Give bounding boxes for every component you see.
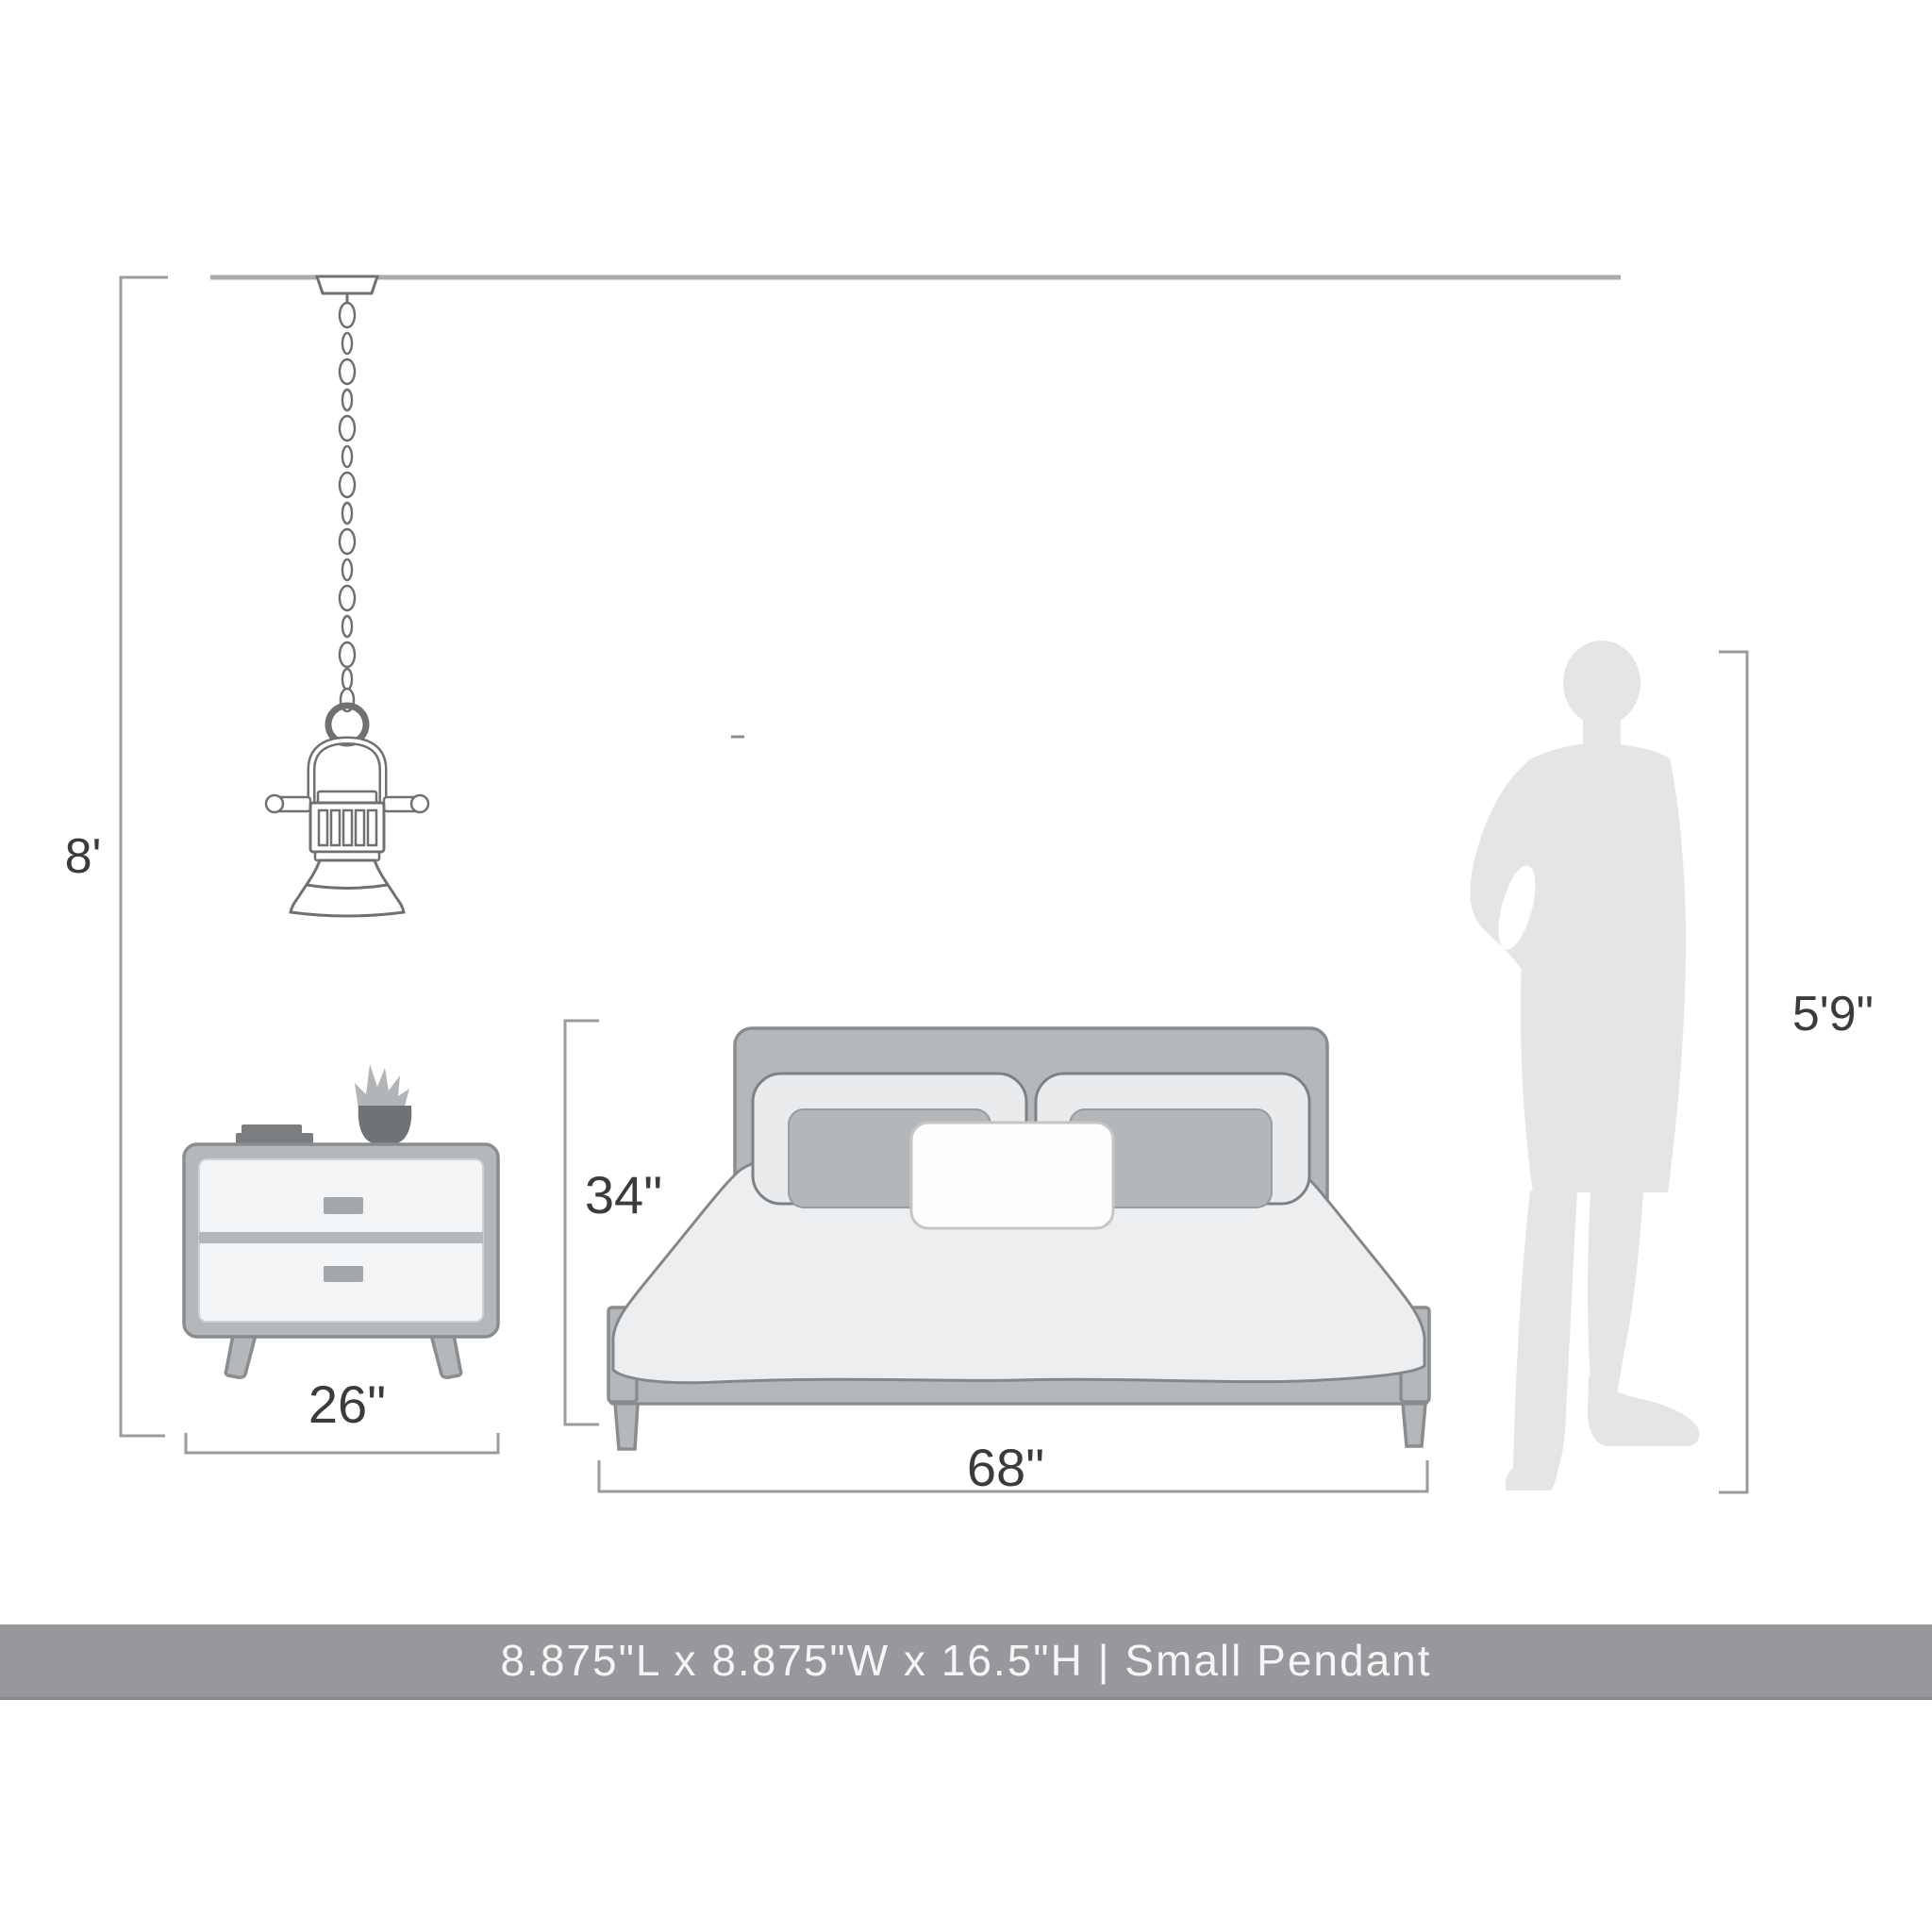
pendant-shade [291, 860, 404, 916]
scale-diagram-page: 8' [0, 0, 1932, 1932]
nightstand-leg-right [431, 1335, 461, 1377]
bed-icon [608, 1028, 1429, 1449]
nightstand-leg-left [225, 1335, 256, 1377]
nightstand-icon [184, 1064, 498, 1377]
book-bottom [236, 1133, 313, 1144]
banner-bottom-edge [0, 1697, 1932, 1700]
person-silhouette [1470, 641, 1699, 1491]
ceiling-height-label: 8' [65, 829, 102, 884]
bed-center-pillow [911, 1123, 1113, 1228]
drawer-handle-top [324, 1197, 363, 1214]
ceiling-height-bracket [121, 277, 168, 1436]
nightstand-width-label: 26" [308, 1374, 386, 1434]
pendant-light-icon [266, 276, 428, 916]
drawer-handle-bottom [324, 1266, 363, 1282]
scale-diagram: 8' [0, 0, 1932, 1932]
bed-width-label: 68" [967, 1438, 1044, 1497]
drawer-divider [199, 1232, 483, 1243]
bed-leg-right [1403, 1404, 1425, 1446]
bed-leg-left [615, 1404, 638, 1449]
banner-text: 8.875"L x 8.875"W x 16.5"H | Small Penda… [500, 1636, 1431, 1685]
pendant-socket [310, 791, 384, 860]
plant-pot [358, 1106, 412, 1143]
bed-height-label: 34" [585, 1165, 662, 1224]
nightstand-width-bracket [186, 1433, 498, 1453]
person-height-bracket [1719, 652, 1747, 1492]
book-top [241, 1124, 302, 1134]
plant-leaves [355, 1064, 409, 1109]
product-banner: 8.875"L x 8.875"W x 16.5"H | Small Penda… [0, 1624, 1932, 1700]
person-height-label: 5'9" [1792, 987, 1874, 1041]
pendant-canopy [317, 276, 377, 293]
pendant-chain [340, 293, 355, 690]
